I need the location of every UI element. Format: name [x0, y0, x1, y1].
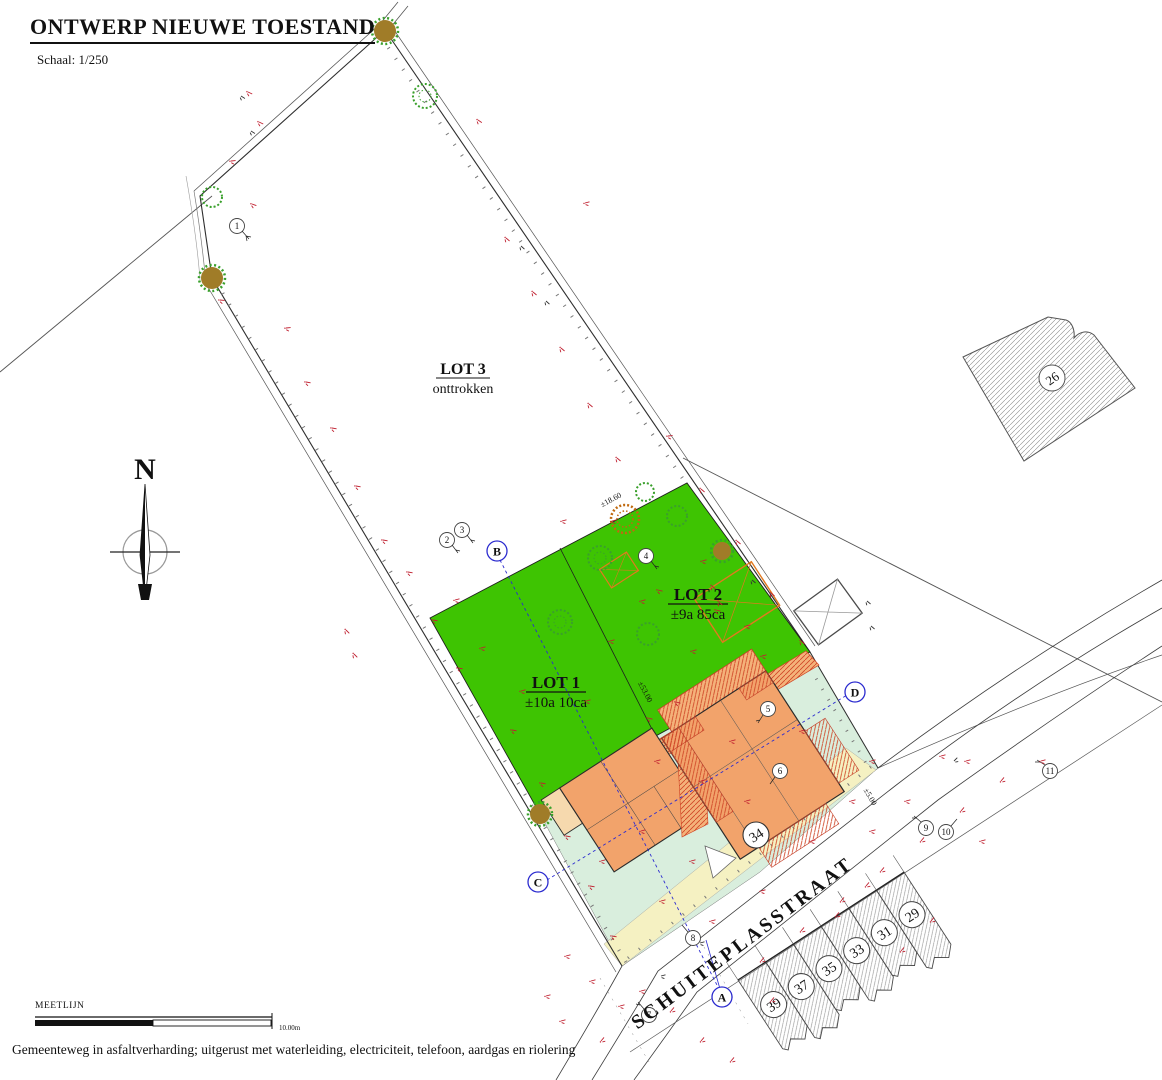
point-marker-label: 10 [942, 827, 952, 837]
lot2-area: ±9a 85ca [671, 607, 726, 623]
survey-mark [586, 402, 593, 409]
survey-mark [979, 840, 985, 844]
survey-mark [729, 1057, 736, 1064]
survey-mark [559, 1020, 565, 1024]
survey-mark [953, 758, 959, 764]
survey-mark [849, 800, 855, 804]
survey-mark [865, 600, 871, 606]
survey-mark [303, 380, 310, 386]
survey-mark [560, 520, 566, 524]
survey-mark [864, 882, 871, 889]
survey-mark [519, 245, 525, 251]
survey-mark [618, 1005, 624, 1009]
survey-mark [799, 927, 806, 934]
dimension: ±18.60 [599, 491, 623, 509]
section-marker-c: C [534, 876, 543, 890]
survey-mark [700, 942, 705, 946]
survey-mark [614, 456, 621, 463]
survey-mark [558, 346, 565, 353]
survey-mark [939, 755, 945, 759]
page-title: ONTWERP NIEUWE TOESTAND [30, 14, 375, 44]
survey-mark [869, 830, 875, 834]
north-arrow: N [110, 453, 180, 600]
survey-mark [544, 300, 550, 306]
survey-mark [661, 975, 666, 979]
survey-mark [999, 777, 1006, 784]
survey-mark [353, 484, 360, 490]
survey-mark [583, 202, 589, 206]
survey-mark [530, 290, 537, 297]
dimension: ±5.00 [862, 787, 879, 807]
point-marker-label: 8 [691, 933, 696, 943]
survey-mark [249, 202, 256, 209]
survey-mark [256, 120, 263, 127]
survey-mark [405, 570, 412, 576]
point-marker-label: 9 [924, 823, 929, 833]
site-plan-sheet: 26 39 37 35 33 31 29 [0, 0, 1162, 1080]
survey-mark [919, 837, 926, 844]
survey-mark [1039, 760, 1045, 764]
survey-mark [879, 867, 886, 874]
point-marker-label: 3 [460, 525, 465, 535]
survey-mark [453, 599, 459, 603]
lot1-area: ±10a 10ca [525, 695, 587, 711]
survey-mark [964, 760, 970, 764]
survey-mark [249, 130, 255, 136]
scale-label: Schaal: 1/250 [37, 52, 108, 68]
survey-mark [229, 160, 236, 165]
survey-mark [351, 652, 357, 659]
survey-mark [904, 800, 910, 804]
lot2-name: LOT 2 [674, 585, 722, 604]
row-houses: 39 37 35 33 31 29 [727, 855, 956, 1060]
scale-bar: 10.00m [35, 1013, 301, 1032]
neighbor-shed [794, 579, 862, 645]
survey-mark [759, 890, 765, 894]
neighbor-building-26: 26 [963, 317, 1135, 461]
point-marker-label: 1 [235, 221, 240, 231]
survey-mark [666, 435, 673, 440]
meetlijn-label: MEETLIJN [35, 1001, 84, 1011]
section-marker-d: D [851, 686, 860, 700]
north-label: N [134, 453, 156, 486]
survey-mark [709, 920, 715, 924]
point-marker-label: 11 [1046, 766, 1055, 776]
survey-mark [380, 538, 387, 544]
survey-mark [329, 426, 336, 432]
survey-mark [343, 628, 349, 635]
point-marker-label: 4 [644, 551, 649, 561]
survey-mark [284, 327, 291, 332]
survey-mark [475, 118, 482, 125]
survey-mark [239, 95, 245, 101]
survey-mark [869, 625, 875, 631]
scale-bar-label: 10.00m [279, 1024, 301, 1032]
road-footnote: Gemeenteweg in asfaltverharding; uitgeru… [12, 1042, 575, 1058]
survey-mark [959, 807, 966, 814]
lot3-name: LOT 3 [440, 361, 486, 378]
point-marker-label: 5 [766, 704, 771, 714]
lot1-name: LOT 1 [532, 673, 580, 692]
survey-mark [699, 1037, 706, 1044]
survey-mark [698, 487, 705, 494]
point-marker-label: 2 [445, 535, 450, 545]
survey-mark [245, 90, 252, 97]
survey-mark [544, 995, 550, 999]
section-marker-b: B [493, 545, 501, 559]
survey-mark [599, 1037, 606, 1044]
survey-mark [503, 236, 510, 243]
survey-mark [589, 980, 595, 984]
lot3-status: onttrokken [433, 382, 494, 397]
survey-mark [564, 955, 570, 959]
point-marker-label: 6 [778, 766, 783, 776]
section-marker-a: A [718, 991, 727, 1005]
site-plan-drawing: 26 39 37 35 33 31 29 [0, 0, 1162, 1080]
survey-mark [218, 298, 225, 304]
